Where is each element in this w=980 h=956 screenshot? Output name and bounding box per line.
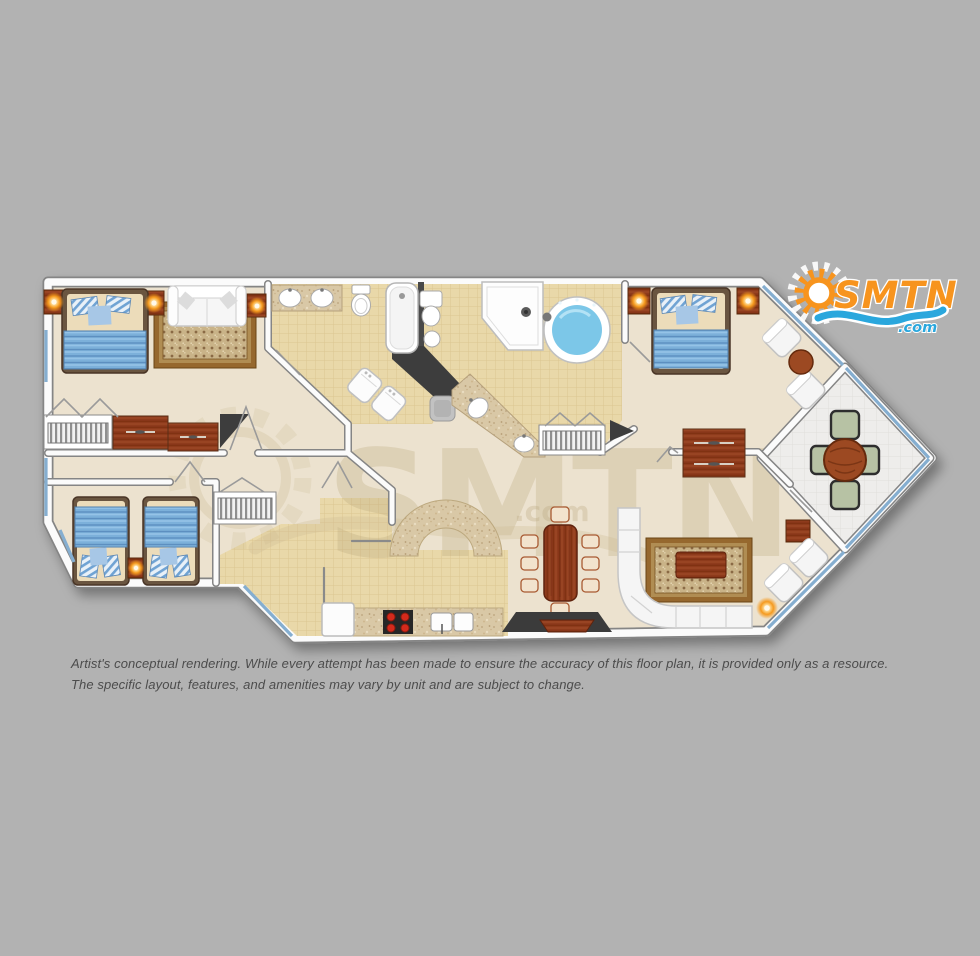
- disclaimer: Artist's conceptual rendering. While eve…: [71, 654, 951, 696]
- round-side-table: [789, 350, 813, 374]
- logo-tld: .com: [898, 320, 937, 336]
- coffee-table: [676, 552, 726, 578]
- floorplan-svg: SMTN .com: [0, 0, 980, 956]
- jacuzzi-tub: [543, 297, 611, 363]
- bed-queen-2: [652, 288, 730, 374]
- bed-queen-1: [62, 289, 148, 373]
- dining-chair: [582, 557, 599, 570]
- double-dresser: [683, 429, 745, 477]
- dining-chair: [521, 535, 538, 548]
- side-table: [786, 520, 810, 542]
- closet-rail: [543, 431, 601, 450]
- disclaimer-line-2: The specific layout, features, and ameni…: [71, 675, 951, 696]
- blanket: [75, 507, 127, 547]
- dining-chair: [521, 579, 538, 592]
- blanket: [64, 331, 146, 369]
- closet-bedroom-1: [44, 415, 112, 449]
- bathtub: [386, 283, 418, 353]
- smtn-logo: SMTN .com: [792, 266, 958, 336]
- closet-rail: [218, 498, 272, 519]
- loveseat: [168, 286, 246, 326]
- bidet: [424, 331, 440, 347]
- dining-chair: [582, 535, 599, 548]
- pillow: [676, 305, 699, 324]
- media-console: [502, 612, 612, 632]
- stove: [383, 610, 413, 634]
- tub-faucet: [543, 313, 552, 322]
- pillow: [89, 547, 107, 565]
- floorplan-canvas: SMTN .com: [0, 0, 980, 956]
- patio-chair: [831, 411, 859, 439]
- closet-bedroom-3: [214, 492, 276, 524]
- closet-rail: [48, 423, 108, 443]
- disclaimer-line-1: Artist's conceptual rendering. While eve…: [71, 654, 951, 675]
- pillow: [88, 305, 112, 325]
- dining-chair: [551, 507, 569, 522]
- patio-chair: [831, 481, 859, 509]
- dining-chair: [582, 579, 599, 592]
- bed-twin-1: [73, 497, 129, 585]
- drain: [399, 293, 405, 299]
- blanket: [654, 330, 728, 368]
- toilet: [352, 285, 371, 316]
- pillow: [159, 547, 177, 565]
- closet-master: [539, 425, 605, 455]
- floorplan-unit: SMTN .com: [44, 282, 932, 638]
- kitchen-counter: [352, 608, 503, 636]
- bed-twin-2: [143, 497, 199, 585]
- dining-chair: [521, 557, 538, 570]
- refrigerator: [322, 603, 354, 636]
- sink: [514, 436, 534, 452]
- patio-table: [824, 439, 866, 481]
- blanket: [145, 507, 197, 547]
